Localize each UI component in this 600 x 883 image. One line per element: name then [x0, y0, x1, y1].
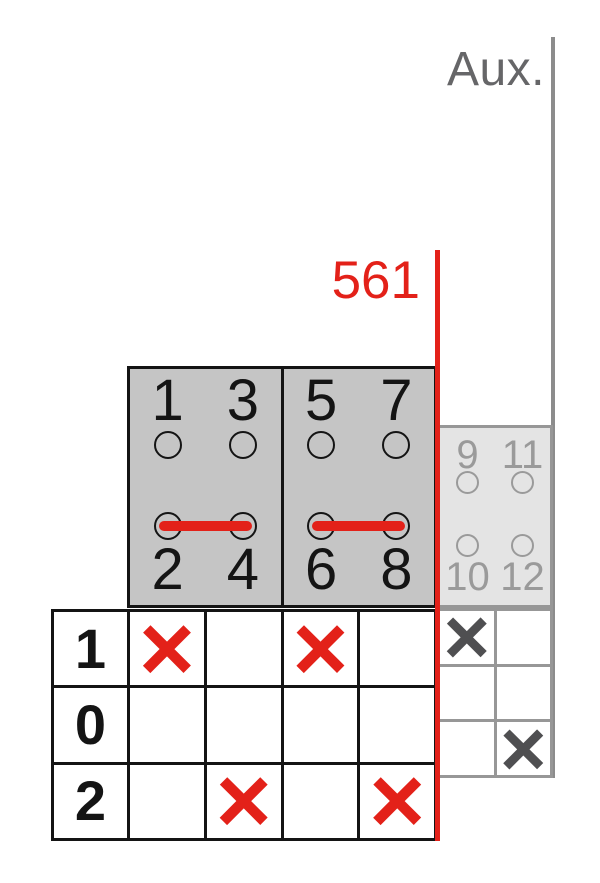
state-cell	[207, 688, 281, 761]
terminal-number-9: 9	[440, 435, 495, 475]
terminal-circle	[456, 471, 479, 494]
terminal-number-10: 10	[440, 557, 495, 597]
position-row-label: 0	[54, 688, 127, 761]
state-cell: ×	[284, 612, 358, 685]
state-cell: ×	[130, 612, 204, 685]
main-contact-box: 1 3 2 4 5 7 6 8	[127, 366, 437, 608]
position-row-label: 2	[54, 765, 127, 838]
main-section-divider-line	[435, 250, 440, 841]
terminal-circle	[456, 534, 479, 557]
state-cell: ×	[360, 765, 434, 838]
position-row-label: 1	[54, 612, 127, 685]
terminal-circle	[511, 534, 534, 557]
state-cell	[360, 612, 434, 685]
terminal-number-8: 8	[359, 541, 434, 599]
aux-state-cell	[497, 667, 551, 720]
aux-state-cell	[440, 667, 494, 720]
aux-state-cell	[497, 611, 551, 664]
closed-contact-bridge	[312, 521, 405, 531]
terminal-number-7: 7	[359, 372, 434, 430]
terminal-number-6: 6	[284, 541, 359, 599]
main-state-table: 1 × × 0 2 × ×	[51, 609, 437, 841]
terminal-circle	[154, 431, 182, 459]
state-cell: ×	[207, 765, 281, 838]
terminal-circle	[229, 431, 257, 459]
aux-label: Aux.	[443, 46, 545, 94]
closed-contact-bridge	[159, 521, 252, 531]
state-cell	[130, 765, 204, 838]
switch-type-label: 561	[300, 254, 420, 307]
terminal-circle	[511, 471, 534, 494]
aux-state-cell	[440, 722, 494, 775]
terminal-number-3: 3	[205, 372, 280, 430]
state-cell	[360, 688, 434, 761]
state-cell	[130, 688, 204, 761]
terminal-number-4: 4	[205, 541, 280, 599]
terminal-number-1: 1	[130, 372, 205, 430]
state-cell	[284, 765, 358, 838]
terminal-circle	[307, 431, 335, 459]
terminal-number-11: 11	[495, 435, 550, 475]
pole-1: 1 3 2 4	[130, 369, 281, 605]
terminal-number-12: 12	[495, 557, 550, 597]
aux-state-cell: ×	[440, 611, 494, 664]
pole-2: 5 7 6 8	[281, 369, 435, 605]
aux-state-table: × ×	[437, 608, 553, 778]
terminal-number-5: 5	[284, 372, 359, 430]
switch-wiring-diagram: Aux. 561 1 3 2 4 5 7 6 8 9 1	[0, 0, 600, 883]
state-cell	[207, 612, 281, 685]
terminal-number-2: 2	[130, 541, 205, 599]
aux-state-cell: ×	[497, 722, 551, 775]
state-cell	[284, 688, 358, 761]
terminal-circle	[382, 431, 410, 459]
aux-contact-box: 9 11 10 12	[437, 425, 553, 608]
